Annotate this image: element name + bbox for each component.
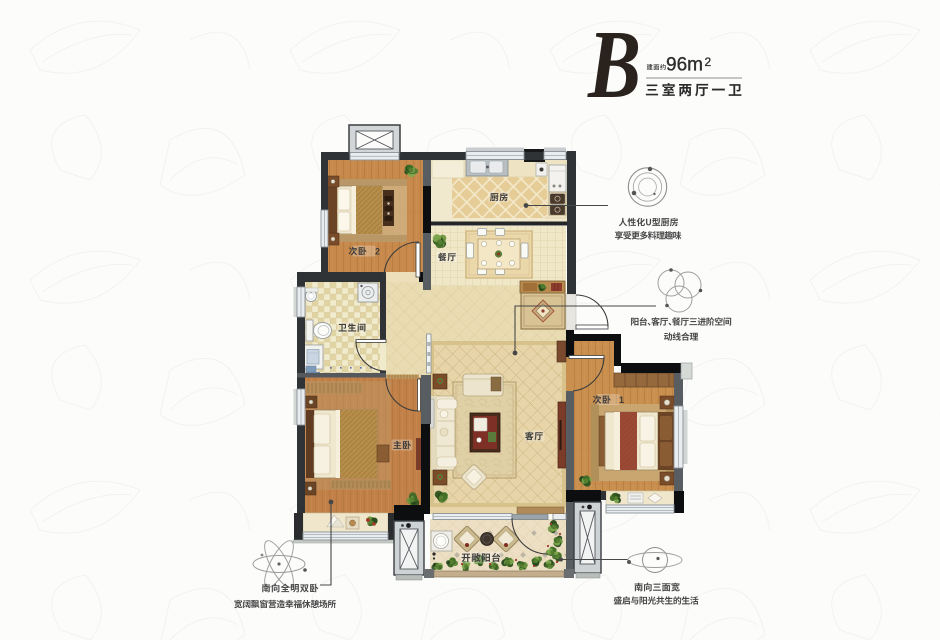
- svg-text:1: 1: [619, 395, 624, 405]
- svg-text:96m: 96m: [666, 55, 703, 76]
- svg-text:B: B: [587, 12, 641, 119]
- svg-text:2: 2: [375, 246, 380, 256]
- svg-text:2: 2: [705, 55, 712, 69]
